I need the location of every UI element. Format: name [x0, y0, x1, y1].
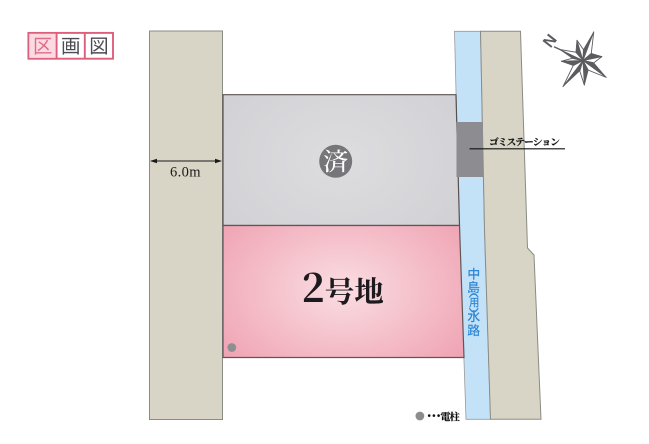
svg-text:6.0m: 6.0m [170, 164, 201, 180]
